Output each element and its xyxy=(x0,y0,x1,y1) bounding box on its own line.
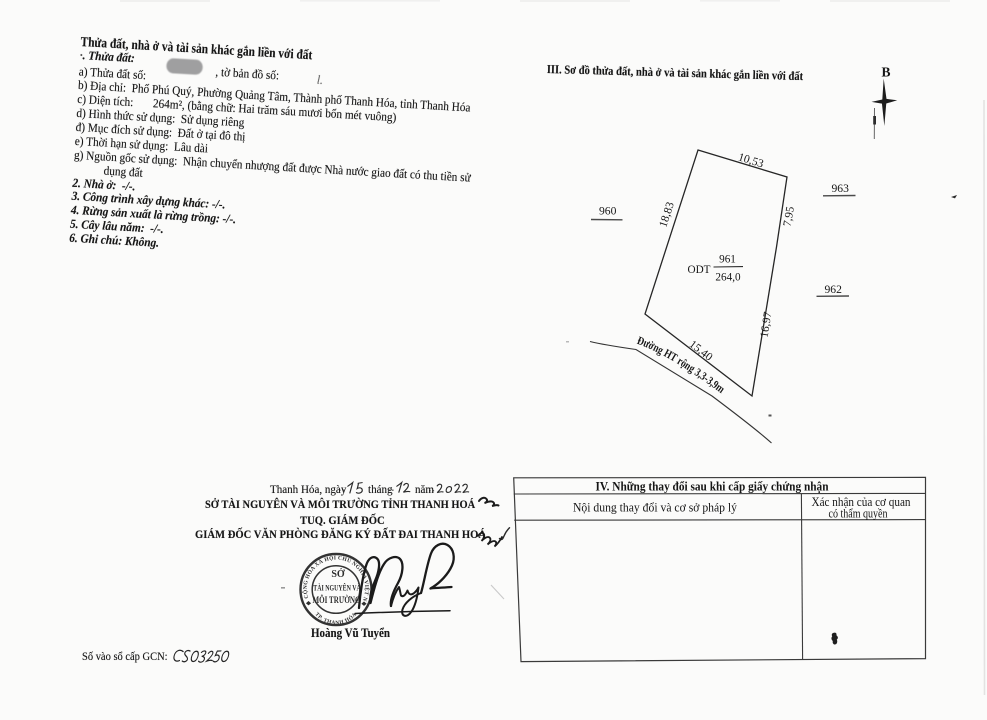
svg-text:960: 960 xyxy=(599,205,617,218)
svg-text:ODT: ODT xyxy=(688,264,711,276)
svg-text:MÔI TRƯỜNG: MÔI TRƯỜNG xyxy=(313,595,361,605)
svg-text:có thẩm quyền: có thẩm quyền xyxy=(829,507,888,521)
svg-text:SỞ: SỞ xyxy=(331,568,345,580)
svg-text:264,0: 264,0 xyxy=(715,272,741,284)
svg-text:Đường HT rộng 3,3-3,9m: Đường HT rộng 3,3-3,9m xyxy=(635,334,727,396)
svg-text:963: 963 xyxy=(832,182,850,195)
svg-text:961: 961 xyxy=(719,254,736,266)
svg-text:15,40: 15,40 xyxy=(687,338,715,363)
svg-text:IV. Những thay đổi sau khi cấp: IV. Những thay đổi sau khi cấp giấy chứn… xyxy=(596,480,829,494)
svg-text:B: B xyxy=(882,65,891,80)
svg-text:7,95: 7,95 xyxy=(782,205,797,227)
svg-text:Nội dung thay đổi và cơ sở phá: Nội dung thay đổi và cơ sở pháp lý xyxy=(573,501,738,515)
svg-text:962: 962 xyxy=(825,283,843,296)
svg-text:10,53: 10,53 xyxy=(737,151,765,170)
svg-text:16,97: 16,97 xyxy=(759,311,775,339)
svg-text:TÀI NGUYÊN VÀ: TÀI NGUYÊN VÀ xyxy=(313,583,361,593)
